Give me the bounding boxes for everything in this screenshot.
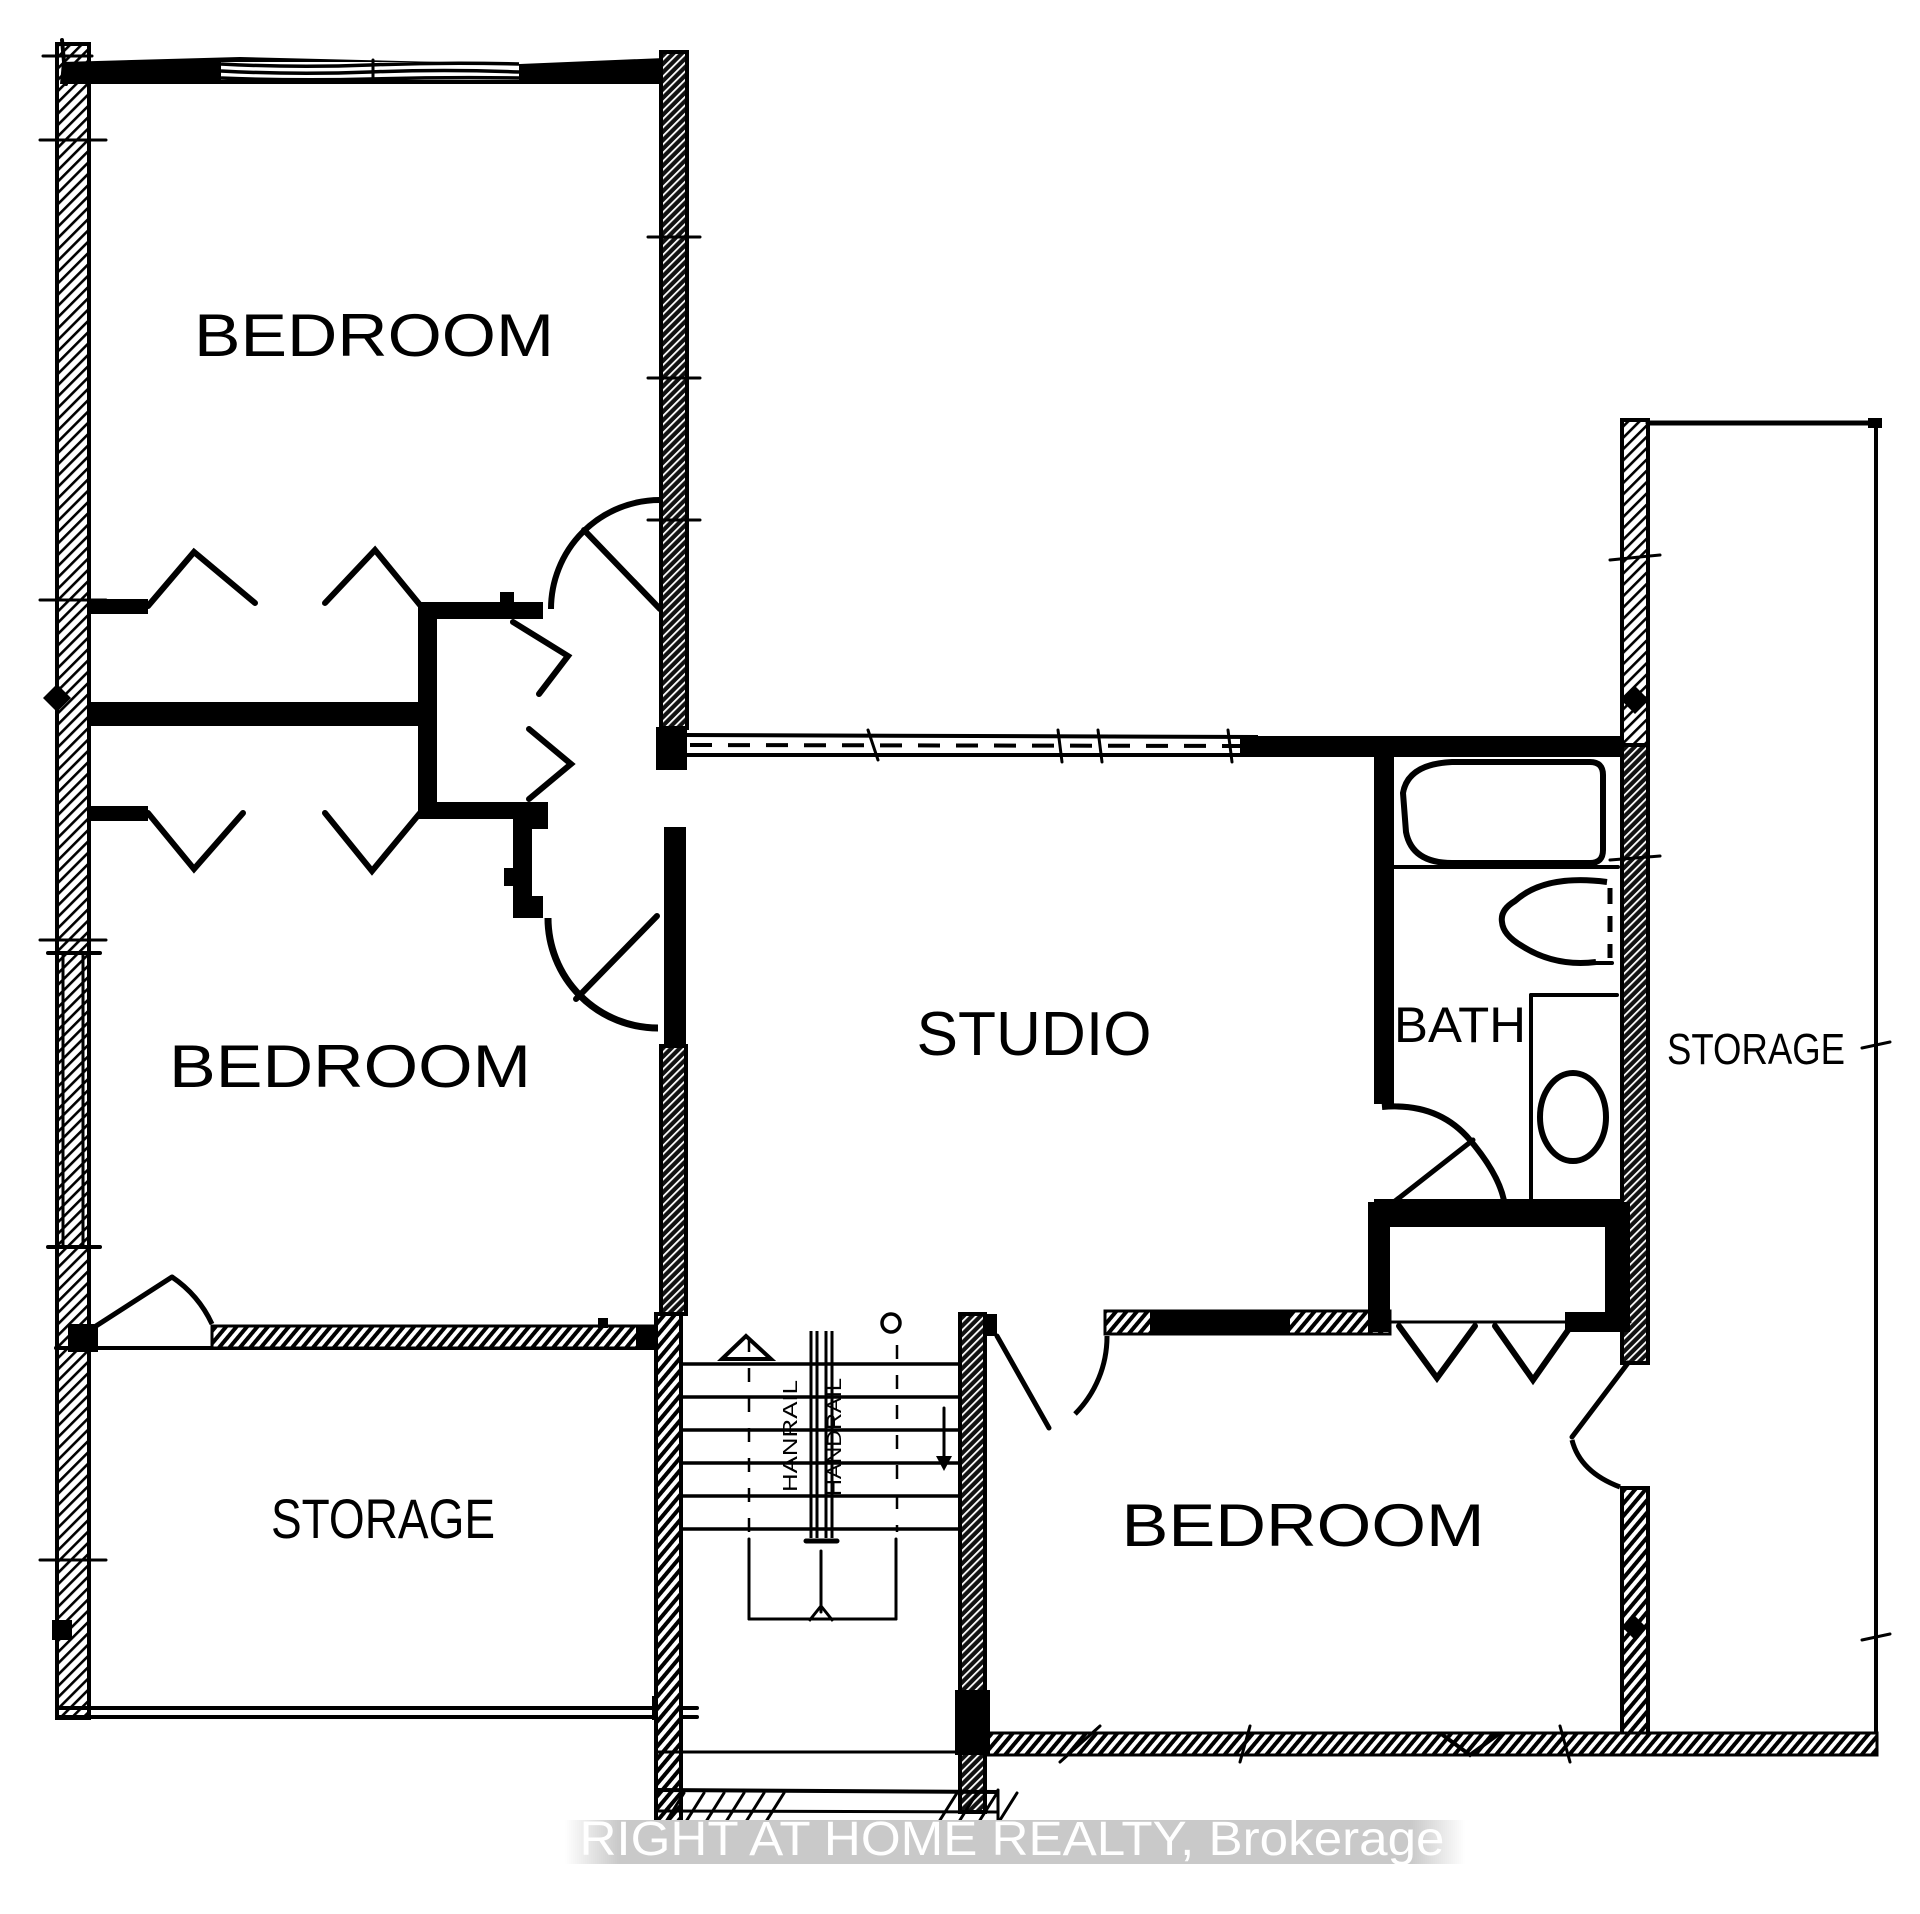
svg-text:STUDIO: STUDIO bbox=[917, 1000, 1152, 1069]
svg-text:RIGHT AT HOME REALTY, Brokerag: RIGHT AT HOME REALTY, Brokerage bbox=[580, 1813, 1445, 1866]
svg-text:BEDROOM: BEDROOM bbox=[194, 302, 554, 369]
svg-text:STORAGE: STORAGE bbox=[1667, 1025, 1845, 1074]
svg-text:STORAGE: STORAGE bbox=[271, 1487, 495, 1550]
svg-text:HANDRAIL: HANDRAIL bbox=[824, 1378, 846, 1496]
svg-text:HANRAIL: HANRAIL bbox=[780, 1380, 802, 1492]
svg-text:BEDROOM: BEDROOM bbox=[169, 1033, 531, 1100]
svg-text:BEDROOM: BEDROOM bbox=[1122, 1492, 1485, 1559]
svg-text:BATH: BATH bbox=[1394, 997, 1526, 1053]
